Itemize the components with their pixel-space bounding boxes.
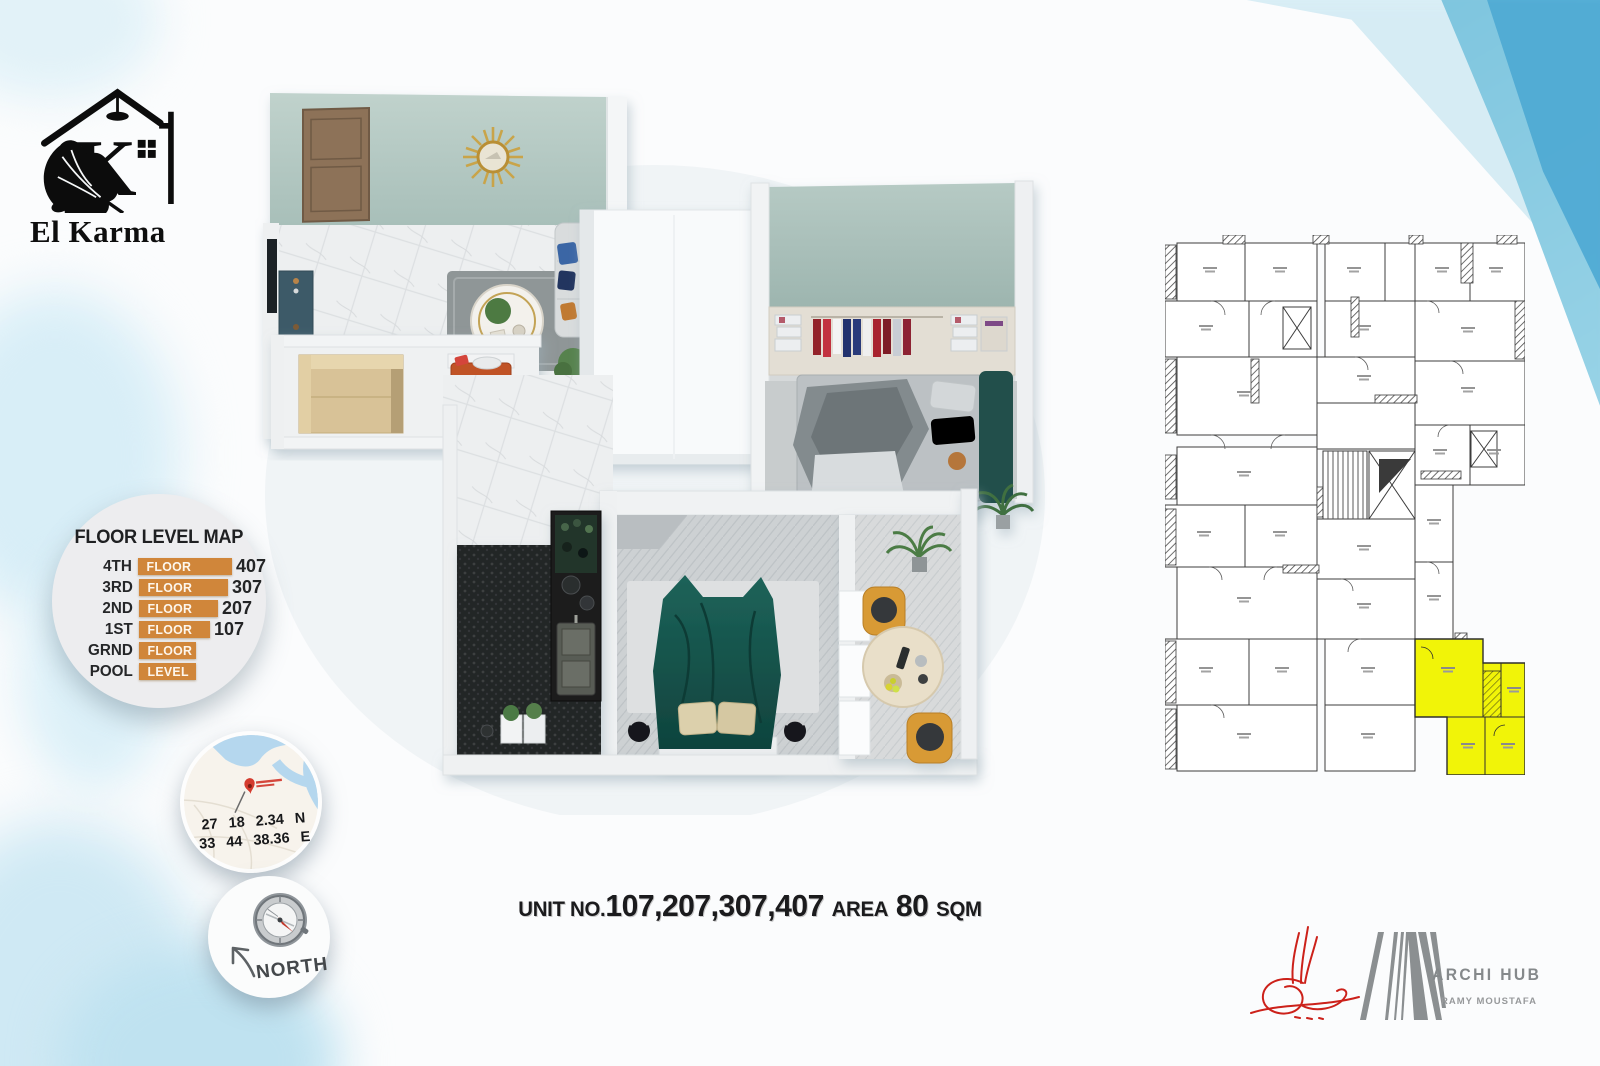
compass-badge: NORTH [208, 876, 330, 998]
brand-name: El Karma [30, 214, 166, 250]
floorplan-3d [255, 75, 1055, 815]
floor-bar: FLOOR [139, 600, 218, 617]
dining-area [839, 489, 977, 763]
accent-pillow [948, 452, 966, 470]
brand-logo-icon: K [28, 78, 198, 213]
bedroom2-accent-wall [769, 183, 1017, 307]
bed-gray [793, 375, 983, 501]
area-value: 80 [896, 888, 928, 924]
floor-row-pool: POOL LEVEL [52, 661, 266, 682]
house-window-icon [138, 140, 156, 158]
studio-author: RAMY MOUSTAFA [1441, 996, 1553, 1007]
floor-bar: FLOOR [139, 621, 210, 638]
stair-core [1323, 451, 1367, 519]
sunburst-mirror-icon [463, 127, 523, 187]
walkin-closet [299, 355, 403, 433]
tv-icon [267, 239, 277, 313]
floor-level-map-badge: FLOOR LEVEL MAP 4TH FLOOR 407 3RD FLOOR … [52, 494, 266, 708]
dining-table [863, 627, 943, 707]
floor-row-1st: 1ST FLOOR 107 [52, 619, 266, 640]
bed-teal [653, 575, 781, 765]
floor-row-4th: 4TH FLOOR 407 [52, 556, 266, 577]
background-blob [0, 820, 210, 1066]
keyplan-2d [1165, 235, 1525, 775]
floor-bar: LEVEL [139, 663, 196, 680]
kitchen-sink [557, 615, 595, 695]
floor-row-grnd: GRND FLOOR [52, 640, 266, 661]
bed-headboard [979, 371, 1013, 503]
poster: K El Karma [0, 0, 1600, 1066]
wardrobe [769, 307, 1015, 375]
floor-bar: FLOOR [139, 642, 196, 659]
floor-row-2nd: 2ND FLOOR 207 [52, 598, 266, 619]
floor-bar: FLOOR [138, 558, 232, 575]
signature-icon [1245, 925, 1375, 1020]
keyplan-highlight-unit [1415, 639, 1525, 775]
floor-row-3rd: 3RD FLOOR 307 [52, 577, 266, 598]
unit-info: UNIT NO. 107,207,307,407 AREA 80 SQM [449, 888, 1050, 924]
floor-level-map-title: FLOOR LEVEL MAP [75, 527, 244, 549]
area-label: AREA [832, 898, 889, 922]
unit-numbers: 107,207,307,407 [605, 888, 823, 924]
room-bedroom2 [751, 181, 1033, 529]
north-arrow-icon [233, 948, 254, 976]
floor-bar: FLOOR [139, 579, 228, 596]
unit-label: UNIT NO. [518, 898, 605, 922]
entry-door-icon [303, 108, 369, 222]
studio-name: ARCHI HUB [1432, 966, 1546, 985]
area-unit: SQM [936, 898, 982, 922]
dining-chair [907, 713, 952, 763]
